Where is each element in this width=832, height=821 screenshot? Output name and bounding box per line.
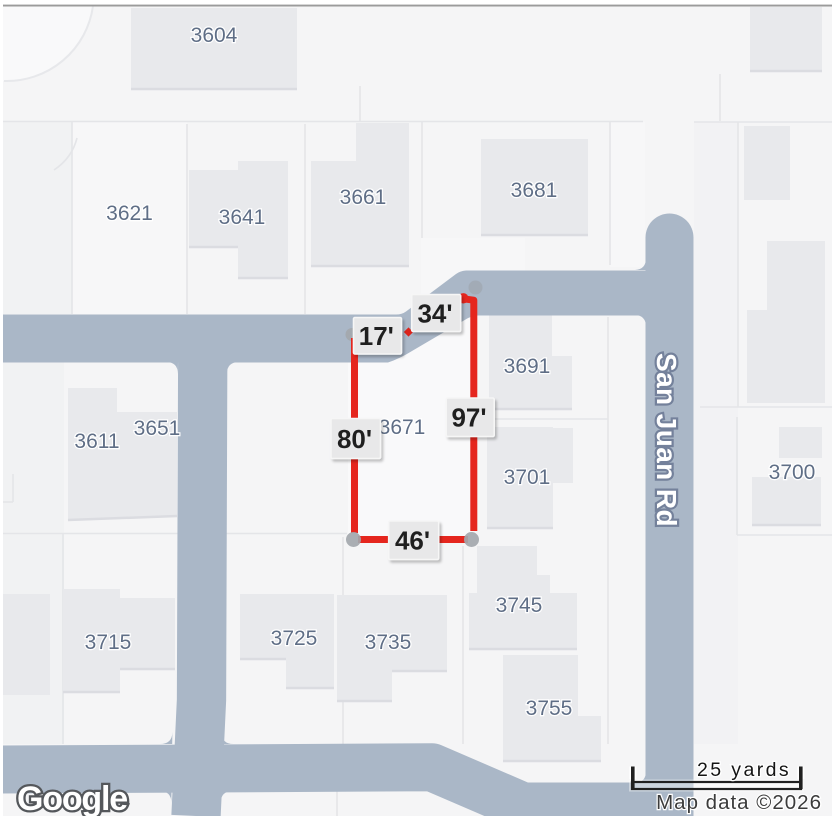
svg-text:3691: 3691 bbox=[504, 355, 551, 378]
svg-text:3700: 3700 bbox=[769, 461, 816, 484]
svg-text:97': 97' bbox=[451, 403, 486, 433]
svg-text:3725: 3725 bbox=[271, 627, 318, 650]
svg-text:3661: 3661 bbox=[340, 186, 387, 209]
svg-text:3671: 3671 bbox=[379, 416, 426, 439]
svg-text:3715: 3715 bbox=[85, 631, 132, 654]
svg-text:25 yards: 25 yards bbox=[697, 759, 791, 781]
svg-text:3641: 3641 bbox=[219, 206, 266, 229]
svg-text:46': 46' bbox=[395, 526, 430, 556]
svg-text:San Juan Rd: San Juan Rd bbox=[651, 353, 682, 527]
svg-text:3604: 3604 bbox=[191, 24, 238, 47]
svg-text:Map data ©2026: Map data ©2026 bbox=[656, 791, 822, 814]
svg-text:34': 34' bbox=[417, 298, 452, 328]
svg-text:3651: 3651 bbox=[134, 417, 181, 440]
svg-text:3621: 3621 bbox=[106, 202, 153, 225]
svg-text:3755: 3755 bbox=[526, 697, 573, 720]
svg-text:3745: 3745 bbox=[496, 594, 543, 617]
svg-text:3735: 3735 bbox=[365, 631, 412, 654]
svg-text:80': 80' bbox=[337, 424, 372, 454]
svg-text:17': 17' bbox=[359, 321, 394, 351]
svg-text:3701: 3701 bbox=[504, 466, 551, 489]
svg-text:3611: 3611 bbox=[74, 430, 119, 453]
svg-text:Google: Google bbox=[17, 780, 127, 816]
svg-text:3681: 3681 bbox=[511, 179, 558, 202]
